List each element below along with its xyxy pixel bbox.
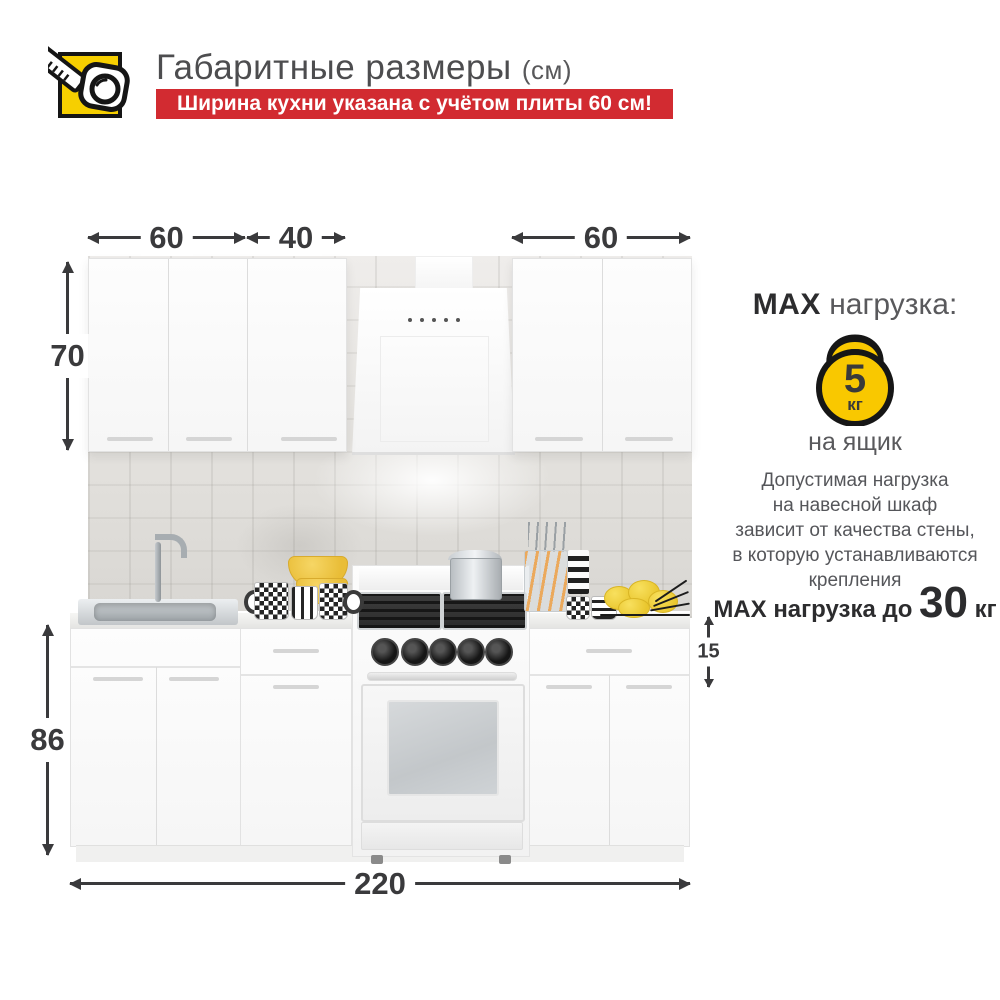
note-line: на навесной шкаф [773, 495, 937, 516]
mug-handle [343, 590, 364, 614]
stove-foot [499, 855, 511, 864]
tape-measure-icon [48, 46, 132, 126]
dim-top-middle: 40 [270, 220, 322, 256]
wall-cabinet-left [88, 258, 347, 452]
striped-canister [568, 550, 589, 594]
base-cabinet-middle [240, 628, 352, 847]
stove-grates [357, 592, 442, 630]
per-drawer-label: на ящик [705, 428, 1000, 457]
dim-total-width: 220 [345, 866, 415, 902]
wall-cabinet-right [512, 258, 692, 452]
hood-controls [408, 318, 460, 322]
dim-drawer-height: 15 [695, 638, 721, 667]
warning-banner: Ширина кухни указана с учётом плиты 60 с… [156, 89, 673, 119]
striped-mug [291, 586, 318, 620]
stove [352, 565, 530, 857]
max-load-title-rest: нагрузка: [821, 288, 957, 321]
oven-window [387, 700, 499, 796]
range-hood [352, 288, 515, 455]
max-wall-load: MAX нагрузка до 30 кг [700, 578, 1000, 628]
dim-arrow-base-height: 86 [46, 625, 49, 855]
load-note: Допустимая нагрузка на навесной шкаф зав… [700, 468, 1000, 593]
dim-arrow-top-left: 60 [88, 236, 245, 239]
dim-arrow-top-middle: 40 [247, 236, 345, 239]
page-title-text: Габаритные размеры [156, 48, 512, 87]
hood-duct [415, 256, 473, 291]
fruit-basket-wire [600, 614, 690, 616]
dim-top-left: 60 [140, 220, 192, 256]
page-title: Габаритные размеры (см) [156, 48, 572, 88]
base-cabinet-right [528, 628, 690, 847]
stove-foot [371, 855, 383, 864]
max-load-title-bold: MAX [753, 288, 821, 321]
page-title-unit: (см) [522, 55, 572, 85]
note-line: в которую устанавливаются [732, 545, 977, 566]
small-checkered-mug [566, 596, 590, 620]
oven-handle [367, 672, 517, 681]
dim-arrow-top-right: 60 [512, 236, 690, 239]
note-line: зависит от качества стены, [735, 520, 974, 541]
dim-base-height: 86 [26, 718, 68, 762]
stove-knob [371, 638, 399, 666]
dim-arrow-wall-height: 70 [66, 262, 69, 450]
faucet-spout [155, 534, 187, 558]
max-wall-prefix: MAX нагрузка до [713, 596, 919, 623]
cutlery-icon [528, 522, 566, 552]
note-line: Допустимая нагрузка [761, 470, 948, 491]
oven-drawer [361, 822, 523, 850]
dim-wall-height: 70 [46, 334, 88, 378]
max-wall-value: 30 [919, 578, 968, 627]
checkered-mug [254, 582, 289, 620]
dim-arrow-total-width: 220 [70, 882, 690, 885]
stove-knob [457, 638, 485, 666]
max-load-title: MAX нагрузка: [705, 288, 1000, 322]
cooking-pot [450, 558, 502, 600]
stove-knob [429, 638, 457, 666]
base-cabinet-sink [70, 628, 242, 847]
stove-knob [401, 638, 429, 666]
max-wall-unit: кг [968, 596, 997, 623]
dim-top-right: 60 [575, 220, 627, 256]
sink-basin [94, 603, 216, 621]
hood-glass-panel [380, 336, 489, 442]
stove-knob [485, 638, 513, 666]
utensil-holder [524, 550, 568, 612]
